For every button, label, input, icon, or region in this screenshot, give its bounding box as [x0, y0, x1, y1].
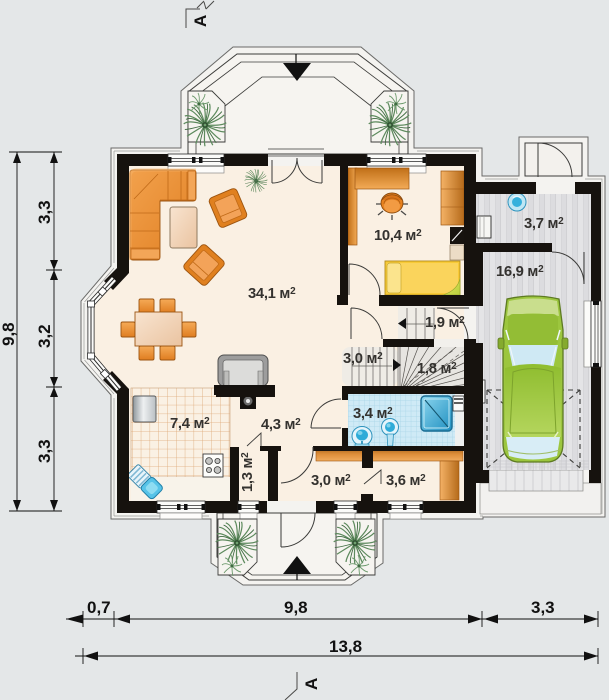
- svg-text:34,1 м2: 34,1 м2: [248, 286, 296, 302]
- svg-text:1,8 м2: 1,8 м2: [417, 361, 457, 377]
- svg-text:3,3: 3,3: [35, 200, 54, 224]
- svg-text:A: A: [191, 15, 210, 27]
- svg-text:1,9 м2: 1,9 м2: [425, 315, 465, 331]
- svg-text:1,3 м2: 1,3 м2: [240, 452, 256, 492]
- svg-text:3,3: 3,3: [531, 598, 555, 617]
- svg-text:3,3: 3,3: [35, 439, 54, 463]
- svg-text:9,8: 9,8: [284, 598, 308, 617]
- svg-text:3,0 м2: 3,0 м2: [311, 473, 351, 489]
- svg-text:4,3 м2: 4,3 м2: [261, 417, 301, 433]
- svg-text:0,7: 0,7: [87, 598, 111, 617]
- svg-text:9,8: 9,8: [0, 322, 18, 346]
- svg-text:16,9 м2: 16,9 м2: [496, 264, 544, 280]
- svg-text:3,7 м2: 3,7 м2: [524, 216, 564, 232]
- svg-text:3,0 м2: 3,0 м2: [343, 351, 383, 367]
- svg-text:10,4 м2: 10,4 м2: [374, 228, 422, 244]
- svg-text:7,4 м2: 7,4 м2: [170, 416, 210, 432]
- svg-text:3,6 м2: 3,6 м2: [386, 473, 426, 489]
- svg-text:A: A: [302, 678, 321, 690]
- svg-text:3,2: 3,2: [35, 324, 54, 348]
- svg-text:3,4 м2: 3,4 м2: [353, 406, 393, 422]
- svg-text:13,8: 13,8: [329, 637, 362, 656]
